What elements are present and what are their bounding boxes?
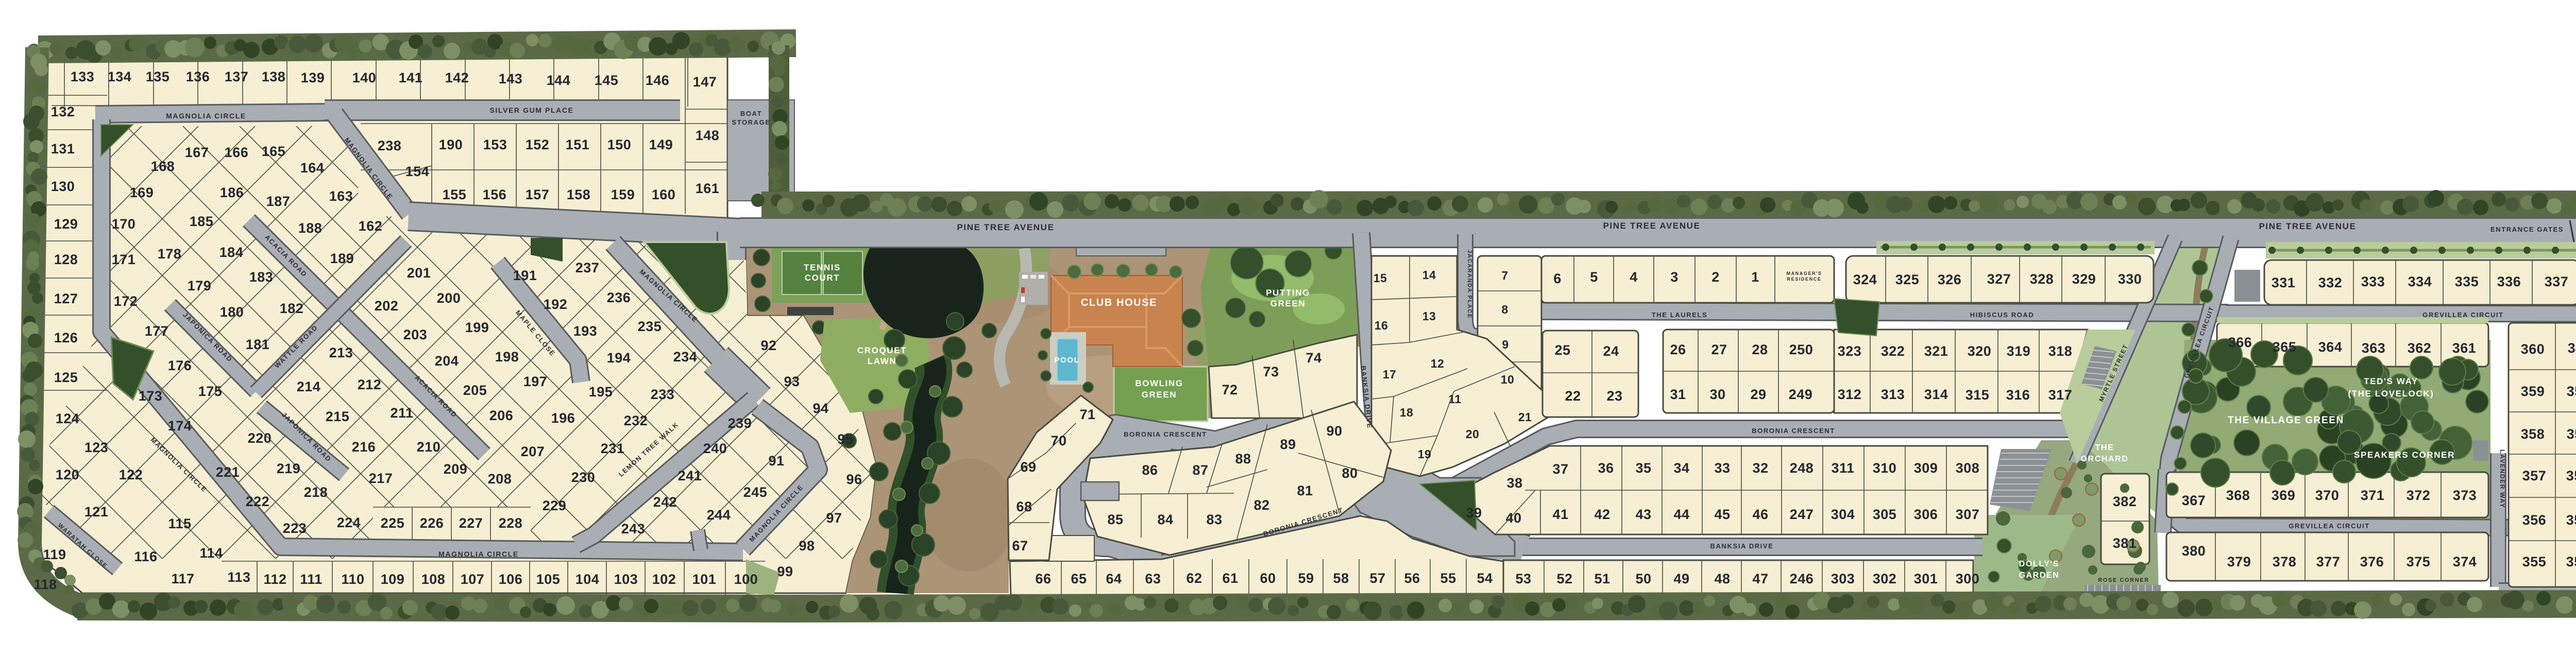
svg-text:126: 126 (54, 330, 78, 345)
svg-text:375: 375 (2406, 554, 2431, 569)
svg-text:205: 205 (463, 383, 487, 398)
svg-text:118: 118 (33, 577, 57, 592)
svg-text:72: 72 (1222, 382, 1238, 397)
svg-text:CROQUET: CROQUET (857, 345, 907, 355)
svg-text:33: 33 (1714, 460, 1730, 476)
svg-text:250: 250 (1789, 342, 1814, 357)
svg-text:125: 125 (54, 370, 78, 385)
svg-text:62: 62 (1186, 570, 1202, 586)
svg-text:89: 89 (1280, 437, 1296, 452)
svg-text:364: 364 (2318, 339, 2343, 355)
svg-text:55: 55 (1440, 570, 1456, 586)
svg-text:129: 129 (54, 216, 78, 232)
svg-text:157: 157 (526, 187, 550, 202)
svg-text:GARDEN: GARDEN (2019, 571, 2060, 580)
svg-text:16: 16 (1375, 319, 1388, 332)
svg-text:28: 28 (1752, 342, 1768, 357)
svg-text:GREEN: GREEN (1142, 390, 1177, 400)
svg-text:24: 24 (1603, 343, 1619, 359)
svg-text:161: 161 (696, 181, 720, 196)
svg-text:151: 151 (566, 137, 590, 152)
svg-text:188: 188 (298, 220, 323, 236)
svg-text:184: 184 (219, 245, 244, 260)
svg-text:MAGNOLIA CIRCLE: MAGNOLIA CIRCLE (166, 112, 246, 120)
svg-text:104: 104 (575, 572, 600, 587)
svg-text:105: 105 (536, 572, 561, 587)
svg-text:10: 10 (1501, 373, 1515, 386)
svg-text:97: 97 (826, 510, 842, 526)
svg-text:163: 163 (329, 188, 353, 204)
svg-text:301: 301 (1914, 571, 1938, 586)
svg-text:29: 29 (1750, 387, 1766, 402)
svg-text:124: 124 (56, 411, 80, 426)
svg-text:322: 322 (1881, 343, 1905, 359)
svg-text:PINE TREE AVENUE: PINE TREE AVENUE (957, 222, 1054, 232)
svg-text:18: 18 (1400, 406, 1414, 419)
svg-text:182: 182 (280, 301, 304, 316)
svg-text:14: 14 (1422, 268, 1436, 282)
svg-text:354: 354 (2566, 554, 2576, 569)
svg-text:148: 148 (696, 128, 720, 143)
svg-text:351: 351 (2567, 426, 2576, 442)
svg-text:138: 138 (262, 69, 286, 84)
svg-text:141: 141 (399, 70, 423, 85)
svg-text:187: 187 (266, 194, 291, 209)
svg-text:20: 20 (1466, 427, 1480, 441)
svg-text:225: 225 (381, 515, 405, 531)
svg-text:50: 50 (1635, 571, 1651, 586)
svg-text:211: 211 (390, 405, 413, 421)
svg-text:193: 193 (573, 323, 598, 339)
svg-text:162: 162 (359, 218, 383, 234)
svg-text:92: 92 (760, 338, 776, 353)
svg-text:108: 108 (421, 572, 446, 587)
svg-text:88: 88 (1235, 451, 1251, 466)
svg-text:60: 60 (1260, 570, 1276, 586)
svg-text:SPEAKERS CORNER: SPEAKERS CORNER (2354, 450, 2455, 460)
svg-text:30: 30 (1709, 387, 1725, 402)
svg-text:249: 249 (1789, 387, 1813, 402)
svg-text:378: 378 (2273, 554, 2297, 569)
svg-text:224: 224 (337, 515, 361, 530)
svg-text:171: 171 (112, 252, 136, 267)
svg-text:119: 119 (43, 547, 66, 562)
svg-text:2: 2 (1711, 269, 1720, 285)
svg-text:229: 229 (543, 498, 567, 513)
svg-text:73: 73 (1263, 364, 1279, 379)
svg-text:324: 324 (1853, 272, 1877, 287)
svg-text:43: 43 (1635, 507, 1651, 522)
svg-text:133: 133 (71, 69, 95, 84)
svg-text:320: 320 (1968, 343, 1992, 359)
svg-text:109: 109 (381, 572, 405, 587)
svg-text:3: 3 (1670, 269, 1679, 285)
svg-text:TENNIS: TENNIS (804, 263, 841, 272)
svg-text:HIBISCUS ROAD: HIBISCUS ROAD (1970, 311, 2035, 319)
svg-text:377: 377 (2316, 554, 2341, 569)
svg-text:JACARANDA PLACE: JACARANDA PLACE (1466, 250, 1472, 319)
svg-text:177: 177 (145, 323, 169, 339)
svg-text:36: 36 (1598, 460, 1614, 476)
svg-text:300: 300 (1956, 571, 1980, 586)
svg-text:152: 152 (526, 137, 550, 152)
svg-text:BORONIA CRESCENT: BORONIA CRESCENT (1124, 430, 1207, 438)
svg-text:TED'S WAY: TED'S WAY (2364, 376, 2418, 386)
svg-text:234: 234 (673, 349, 698, 365)
svg-text:149: 149 (649, 137, 673, 152)
svg-text:243: 243 (621, 521, 646, 537)
svg-text:67: 67 (1012, 538, 1028, 554)
svg-text:GREEN: GREEN (1270, 299, 1306, 308)
svg-text:82: 82 (1253, 497, 1269, 513)
svg-text:349: 349 (2568, 340, 2576, 356)
svg-text:226: 226 (420, 515, 444, 531)
svg-text:THE VILLAGE GREEN: THE VILLAGE GREEN (2228, 415, 2344, 426)
svg-text:106: 106 (499, 572, 523, 587)
svg-text:382: 382 (2113, 494, 2137, 509)
svg-text:246: 246 (1790, 571, 1814, 586)
svg-text:4: 4 (1630, 269, 1638, 285)
svg-text:158: 158 (567, 187, 591, 202)
svg-text:5: 5 (1590, 269, 1598, 285)
svg-text:189: 189 (330, 251, 354, 266)
svg-text:59: 59 (1298, 570, 1314, 586)
svg-text:199: 199 (465, 320, 489, 335)
svg-text:90: 90 (1326, 423, 1342, 439)
svg-text:374: 374 (2453, 554, 2477, 569)
svg-text:145: 145 (595, 73, 619, 88)
svg-text:331: 331 (2272, 275, 2296, 290)
svg-text:DOLLY'S: DOLLY'S (2019, 560, 2059, 568)
svg-text:117: 117 (171, 571, 194, 586)
svg-text:51: 51 (1594, 571, 1610, 586)
svg-text:58: 58 (1333, 570, 1349, 586)
svg-text:209: 209 (444, 461, 468, 477)
svg-text:46: 46 (1752, 507, 1768, 522)
svg-text:367: 367 (2182, 493, 2206, 508)
svg-text:319: 319 (2007, 343, 2031, 359)
svg-text:228: 228 (499, 515, 523, 531)
svg-text:164: 164 (300, 160, 325, 176)
svg-text:183: 183 (249, 269, 274, 285)
svg-text:376: 376 (2360, 554, 2384, 569)
svg-text:GREVILLEA CIRCUIT: GREVILLEA CIRCUIT (2289, 522, 2369, 530)
svg-text:238: 238 (378, 138, 402, 153)
svg-text:147: 147 (693, 74, 717, 90)
svg-text:110: 110 (341, 572, 364, 587)
svg-text:15: 15 (1374, 271, 1387, 285)
svg-text:35: 35 (1635, 460, 1651, 476)
svg-text:305: 305 (1873, 507, 1897, 522)
svg-text:357: 357 (2522, 468, 2547, 483)
svg-text:41: 41 (1552, 507, 1568, 522)
svg-text:143: 143 (499, 71, 523, 87)
svg-text:37: 37 (1552, 461, 1568, 477)
svg-text:215: 215 (326, 409, 350, 424)
svg-text:185: 185 (190, 214, 214, 229)
svg-text:39: 39 (1466, 505, 1482, 521)
svg-text:(THE LOVELOCK): (THE LOVELOCK) (2348, 389, 2434, 399)
svg-text:179: 179 (188, 278, 212, 293)
svg-text:74: 74 (1306, 350, 1321, 366)
svg-text:9: 9 (1502, 338, 1509, 351)
svg-text:176: 176 (168, 358, 192, 373)
svg-text:BANKSIA DRIVE: BANKSIA DRIVE (1710, 542, 1774, 550)
svg-text:206: 206 (489, 408, 514, 423)
svg-text:45: 45 (1714, 507, 1730, 522)
svg-text:368: 368 (2226, 488, 2250, 503)
svg-text:86: 86 (1142, 462, 1158, 478)
svg-text:136: 136 (186, 69, 210, 84)
svg-text:166: 166 (225, 145, 249, 160)
svg-text:84: 84 (1157, 512, 1173, 527)
svg-text:172: 172 (114, 293, 138, 309)
svg-text:127: 127 (54, 291, 78, 306)
svg-text:132: 132 (51, 104, 75, 119)
svg-text:122: 122 (119, 467, 143, 482)
svg-text:232: 232 (624, 413, 648, 428)
svg-text:220: 220 (248, 430, 272, 446)
svg-text:195: 195 (589, 384, 613, 400)
svg-text:355: 355 (2522, 554, 2547, 569)
svg-text:308: 308 (1956, 460, 1980, 476)
svg-text:53: 53 (1515, 571, 1531, 586)
svg-text:142: 142 (445, 70, 469, 85)
svg-text:128: 128 (54, 252, 78, 267)
svg-text:123: 123 (84, 440, 109, 455)
svg-text:112: 112 (263, 572, 286, 587)
svg-text:STORAGE: STORAGE (732, 118, 770, 126)
svg-text:38: 38 (1506, 475, 1522, 491)
svg-text:34: 34 (1673, 460, 1689, 476)
svg-text:83: 83 (1206, 512, 1222, 527)
svg-text:231: 231 (601, 441, 625, 456)
svg-text:17: 17 (1383, 368, 1397, 381)
svg-text:212: 212 (358, 377, 382, 392)
svg-text:ORCHARD: ORCHARD (2081, 455, 2129, 463)
svg-text:69: 69 (1020, 459, 1036, 475)
svg-text:87: 87 (1192, 462, 1208, 478)
svg-text:8: 8 (1501, 303, 1508, 316)
svg-text:307: 307 (1956, 507, 1980, 522)
svg-text:96: 96 (846, 472, 862, 487)
svg-text:100: 100 (734, 572, 758, 587)
svg-text:352: 352 (2566, 468, 2576, 483)
svg-text:135: 135 (146, 69, 170, 84)
svg-text:362: 362 (2408, 340, 2432, 356)
svg-text:242: 242 (653, 494, 677, 510)
svg-text:170: 170 (112, 216, 136, 232)
svg-text:200: 200 (437, 290, 461, 306)
svg-text:26: 26 (1670, 342, 1686, 357)
svg-text:144: 144 (547, 73, 571, 88)
svg-text:181: 181 (246, 337, 270, 352)
svg-text:65: 65 (1071, 571, 1087, 586)
svg-text:241: 241 (678, 468, 702, 483)
svg-text:240: 240 (703, 441, 727, 456)
svg-text:302: 302 (1873, 571, 1897, 586)
svg-text:1: 1 (1751, 269, 1759, 285)
svg-text:155: 155 (443, 187, 467, 202)
svg-text:379: 379 (2227, 554, 2251, 569)
svg-text:358: 358 (2521, 426, 2545, 442)
svg-text:315: 315 (1965, 387, 1990, 403)
svg-text:201: 201 (407, 265, 431, 281)
svg-text:221: 221 (216, 464, 240, 480)
svg-text:196: 196 (551, 410, 575, 426)
svg-text:131: 131 (51, 141, 75, 157)
svg-text:180: 180 (220, 304, 244, 320)
svg-text:BORONIA CRESCENT: BORONIA CRESCENT (1752, 427, 1835, 435)
svg-text:93: 93 (784, 374, 800, 389)
svg-text:370: 370 (2315, 488, 2340, 503)
svg-text:247: 247 (1790, 507, 1814, 522)
svg-text:373: 373 (2453, 488, 2477, 503)
svg-text:169: 169 (130, 185, 154, 200)
svg-text:7: 7 (1501, 269, 1508, 282)
svg-text:323: 323 (1838, 343, 1862, 359)
svg-text:48: 48 (1714, 571, 1730, 586)
svg-text:146: 146 (646, 73, 670, 88)
svg-text:227: 227 (459, 515, 483, 531)
svg-text:218: 218 (304, 485, 328, 500)
svg-text:333: 333 (2361, 274, 2385, 289)
svg-text:POOL: POOL (1055, 356, 1080, 365)
svg-text:160: 160 (652, 187, 676, 202)
svg-text:316: 316 (2006, 387, 2030, 403)
svg-text:174: 174 (168, 418, 192, 434)
svg-text:330: 330 (2118, 271, 2142, 287)
svg-text:54: 54 (1477, 570, 1493, 586)
svg-text:248: 248 (1790, 460, 1814, 476)
svg-text:165: 165 (262, 144, 286, 159)
svg-text:216: 216 (352, 439, 376, 455)
svg-text:71: 71 (1079, 407, 1095, 422)
svg-text:23: 23 (1606, 388, 1622, 404)
svg-text:192: 192 (544, 297, 568, 312)
svg-text:335: 335 (2455, 274, 2479, 289)
svg-text:202: 202 (375, 298, 399, 314)
svg-text:363: 363 (2362, 340, 2386, 356)
svg-text:245: 245 (743, 485, 768, 500)
svg-text:99: 99 (777, 564, 793, 579)
svg-text:203: 203 (403, 327, 428, 342)
svg-text:208: 208 (488, 471, 512, 487)
svg-text:11: 11 (1448, 392, 1461, 406)
svg-text:21: 21 (1518, 410, 1532, 424)
svg-text:312: 312 (1838, 387, 1862, 402)
svg-text:102: 102 (652, 572, 676, 587)
svg-text:304: 304 (1831, 507, 1855, 522)
svg-text:237: 237 (575, 260, 600, 275)
svg-text:306: 306 (1914, 507, 1938, 522)
svg-text:31: 31 (1670, 387, 1686, 402)
svg-text:223: 223 (283, 521, 307, 536)
svg-text:235: 235 (638, 319, 662, 334)
svg-text:56: 56 (1404, 570, 1420, 586)
svg-text:CLUB HOUSE: CLUB HOUSE (1081, 297, 1157, 308)
svg-text:336: 336 (2497, 274, 2521, 289)
svg-text:ROSE CORNER: ROSE CORNER (2098, 577, 2149, 583)
svg-text:309: 309 (1914, 460, 1938, 476)
svg-text:63: 63 (1145, 571, 1161, 586)
svg-text:239: 239 (728, 416, 752, 431)
svg-text:380: 380 (2182, 543, 2206, 559)
svg-text:191: 191 (513, 268, 537, 283)
svg-text:6: 6 (1553, 271, 1562, 286)
svg-text:95: 95 (837, 431, 853, 447)
svg-text:317: 317 (2048, 387, 2073, 403)
svg-text:52: 52 (1556, 571, 1572, 586)
svg-text:22: 22 (1565, 388, 1581, 404)
svg-text:47: 47 (1752, 571, 1768, 586)
svg-text:329: 329 (2072, 271, 2096, 287)
svg-text:326: 326 (1938, 272, 1962, 287)
svg-text:115: 115 (168, 516, 191, 531)
svg-text:98: 98 (799, 538, 815, 554)
svg-text:310: 310 (1873, 460, 1897, 476)
svg-text:381: 381 (2113, 535, 2137, 551)
svg-text:27: 27 (1711, 342, 1727, 357)
svg-text:116: 116 (134, 549, 157, 564)
svg-text:THE LAURELS: THE LAURELS (1652, 311, 1708, 319)
svg-text:PINE TREE AVENUE: PINE TREE AVENUE (1603, 221, 1700, 231)
svg-text:167: 167 (185, 145, 209, 160)
svg-text:42: 42 (1594, 507, 1610, 522)
svg-text:178: 178 (158, 246, 182, 262)
svg-text:LAWN: LAWN (868, 356, 896, 366)
svg-text:91: 91 (768, 453, 784, 469)
svg-text:25: 25 (1554, 342, 1570, 358)
svg-text:175: 175 (198, 384, 223, 399)
svg-text:360: 360 (2521, 341, 2545, 357)
svg-text:332: 332 (2318, 275, 2343, 290)
svg-text:194: 194 (607, 350, 631, 366)
svg-text:173: 173 (139, 388, 163, 404)
svg-text:197: 197 (523, 374, 548, 389)
svg-text:359: 359 (2521, 384, 2545, 399)
svg-text:334: 334 (2408, 274, 2432, 289)
svg-text:369: 369 (2272, 488, 2296, 503)
svg-text:40: 40 (1505, 510, 1521, 526)
svg-text:137: 137 (225, 69, 249, 84)
svg-text:101: 101 (692, 572, 717, 587)
svg-text:MANAGER'S: MANAGER'S (1786, 271, 1822, 276)
svg-text:PINE TREE AVENUE: PINE TREE AVENUE (2259, 221, 2356, 231)
svg-text:BOAT: BOAT (740, 110, 762, 117)
svg-text:19: 19 (1418, 447, 1432, 461)
svg-text:236: 236 (607, 290, 631, 305)
svg-text:168: 168 (151, 159, 175, 174)
svg-text:13: 13 (1422, 309, 1436, 323)
svg-text:32: 32 (1752, 460, 1768, 476)
svg-text:213: 213 (329, 345, 353, 360)
svg-text:61: 61 (1222, 570, 1238, 586)
svg-text:318: 318 (2048, 343, 2073, 359)
svg-text:217: 217 (369, 471, 393, 486)
svg-text:159: 159 (611, 187, 635, 202)
svg-text:139: 139 (301, 70, 325, 85)
svg-text:361: 361 (2452, 340, 2477, 356)
svg-text:244: 244 (707, 507, 731, 523)
svg-text:366: 366 (2228, 335, 2252, 350)
svg-text:186: 186 (220, 185, 244, 200)
svg-text:LAVENDER WAY: LAVENDER WAY (2499, 449, 2506, 508)
svg-text:81: 81 (1297, 483, 1313, 498)
svg-text:219: 219 (277, 461, 301, 476)
svg-text:111: 111 (300, 572, 323, 587)
svg-text:PUTTING: PUTTING (1266, 288, 1310, 298)
